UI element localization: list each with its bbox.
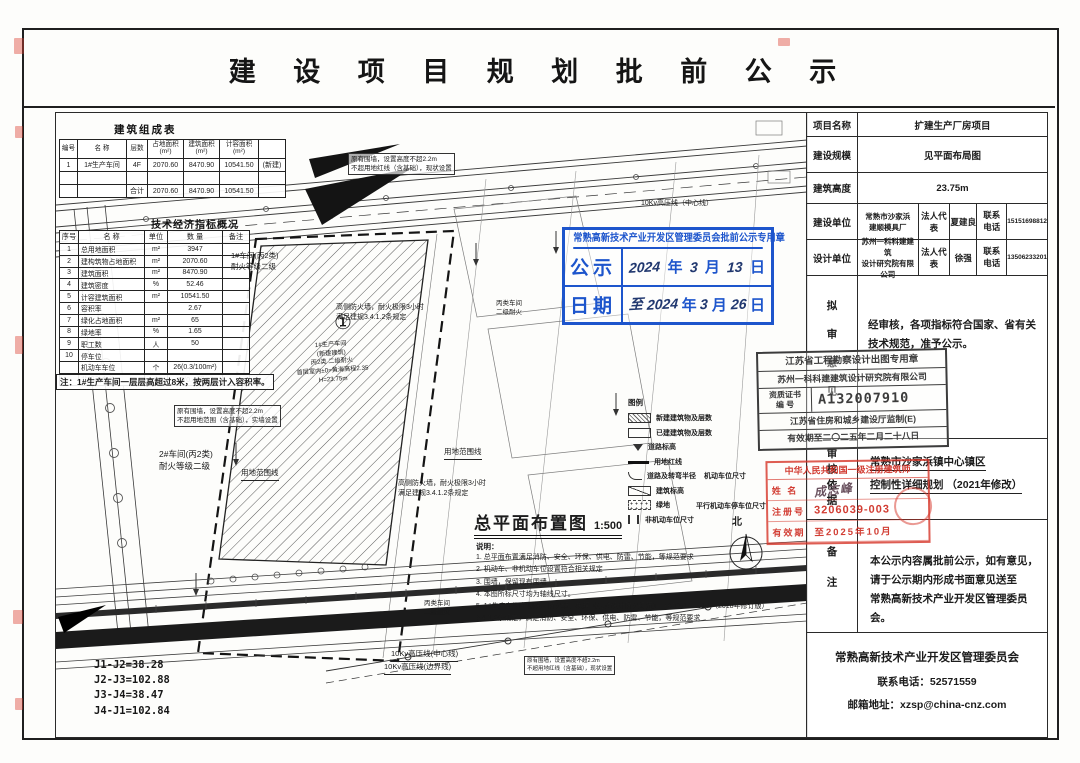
indicator-row: 5计容建筑面积 m²10541.50 bbox=[60, 291, 250, 303]
publicity-period-stamp: 常熟高新技术产业开发区管理委员会批前公示专用章 公示 日期 2024年 3月 1… bbox=[562, 227, 774, 325]
north-label: 北 bbox=[732, 513, 742, 528]
composition-header-cell bbox=[259, 140, 286, 159]
plan-title: 总平面布置图 bbox=[474, 514, 588, 533]
boundary-line-label-2: 用地范围线 bbox=[444, 447, 482, 460]
site-plan-drawing: 建筑组成表 编号名 称层数占地面积 (m²)建筑面积 (m²)计容面积 (m²)… bbox=[55, 112, 808, 738]
composition-row: 11#生产车间 4F2070.60 8470.9010541.50 (新建) bbox=[60, 159, 286, 172]
composition-table: 编号名 称层数占地面积 (m²)建筑面积 (m²)计容面积 (m²) 11#生产… bbox=[59, 139, 286, 198]
page-title: 建 设 项 目 规 划 批 前 公 示 bbox=[0, 50, 1080, 89]
composition-header-cell: 占地面积 (m²) bbox=[148, 140, 184, 159]
red-scan-mark bbox=[13, 610, 23, 624]
row-design-unit: 设计单位 苏州一科科建建筑 设计研究院有限公司 法人代表 徐强 联系电话 135… bbox=[807, 240, 1047, 276]
legend-existing-building-icon bbox=[628, 428, 651, 438]
plan-note-line: 4. 本图所标尺寸均为轴线尺寸。 bbox=[476, 589, 769, 601]
plan-note-line: 5. 1#生产车间东侧设置防火墙，按照《建筑设计防火规范》 GB50016-20… bbox=[476, 601, 769, 613]
publicity-stamp-labels: 公示 日期 bbox=[565, 249, 623, 322]
firewall-note-2: 高侧防火墙，耐火极限3小时 满足建规3.4.1.2条规定 bbox=[398, 479, 486, 499]
neighbor-label-2: 丙类车间 二级耐火 bbox=[424, 599, 450, 617]
row-build-scale: 建设规模 见平面布局图 bbox=[807, 137, 1047, 173]
plan-heading: 总平面布置图1:500 bbox=[474, 509, 622, 539]
plan-note-line: 1. 总平面布置满足消防、安全、环保、供电、防雷、节能，等规范要求 bbox=[476, 552, 769, 564]
row-construction-unit: 建设单位 常熟市沙家浜 建顺模具厂 法人代表 夏建良 联系电话 15151698… bbox=[807, 204, 1047, 240]
plan-notes: 说明： 1. 总平面布置满足消防、安全、环保、供电、防雷、节能，等规范要求2. … bbox=[476, 541, 769, 626]
composition-header-cell: 层数 bbox=[127, 140, 148, 159]
certificate-number-row: 资质证书编 号 A132007910 bbox=[759, 385, 946, 414]
red-scan-mark bbox=[778, 38, 790, 46]
bottom-road-arrow bbox=[58, 605, 106, 633]
architect-signature: 成志峰 bbox=[813, 478, 854, 500]
red-scan-mark bbox=[15, 126, 23, 138]
indicator-row: 2建构筑物占地面积 m²2070.60 bbox=[60, 255, 250, 267]
composition-header-cell: 编号 bbox=[60, 140, 78, 159]
row-project-name: 项目名称 扩建生产厂房项目 bbox=[807, 113, 1047, 137]
building-label: 1#生产车间 (新建建筑) 丙2类 二级耐火 首层室内±0=黄海高程2.35 H… bbox=[268, 337, 397, 389]
indicator-row: 3建筑面积 m²8470.90 bbox=[60, 267, 250, 279]
indicator-row: 4建筑密度 %52.46 bbox=[60, 279, 250, 291]
workshop2-label: 2#车间(丙2类) 耐火等级二级 bbox=[159, 449, 213, 473]
plan-scale: 1:500 bbox=[594, 520, 622, 532]
publicity-start-date: 2024年 3月 13日 bbox=[623, 249, 771, 287]
composition-row bbox=[60, 172, 286, 185]
registered-architect-stamp: 中华人民共和国一级注册建筑师 姓 名 成志峰 注册号 3206039-003 有… bbox=[765, 459, 930, 545]
indicator-row: 6容积率 2.67 bbox=[60, 302, 250, 314]
indicator-row: 1总用地面积 m²3947 bbox=[60, 244, 250, 256]
scanned-announcement-sheet: 建 设 项 目 规 划 批 前 公 示 bbox=[0, 0, 1080, 763]
boundary-length-item: J2-J3=102.88 bbox=[94, 673, 170, 688]
legend-redline-icon bbox=[628, 461, 649, 464]
indicator-table: 序号名 称单位数 量备注 1总用地面积 m²3947 2建构筑物占地面积 m²2… bbox=[59, 230, 250, 386]
road-arrow-2 bbox=[305, 168, 412, 225]
legend-new-building-icon bbox=[628, 413, 651, 423]
panel-footer: 常熟高新技术产业开发区管理委员会 联系电话：52571559 邮箱地址：xzsp… bbox=[807, 633, 1047, 737]
neighbor-label-1: 丙类车间 二级耐火 bbox=[496, 299, 522, 317]
publicity-end-date: 至 2024年 3月 26日 bbox=[623, 287, 771, 323]
design-institute-stamp: 江苏省工程勘察设计出图专用章 苏州一科科建建筑设计研究院有限公司 资质证书编 号… bbox=[756, 348, 949, 451]
plan-note-line: 3. 围墙，保留现有围墙 bbox=[476, 577, 769, 589]
legend-road-elevation-icon bbox=[633, 444, 643, 451]
wall-note-top: 原有围墙，设置高度不超2.2m 不超用地红线（含基础），现状设置 bbox=[348, 153, 455, 175]
composition-header-cell: 名 称 bbox=[78, 140, 127, 159]
contact-phone: 联系电话：52571559 bbox=[877, 674, 976, 689]
boundary-length-item: J4-J1=102.84 bbox=[94, 704, 170, 719]
indicator-row: 7绿化占地面积 m²65 bbox=[60, 314, 250, 326]
legend-building-elevation-icon bbox=[628, 486, 651, 496]
indicator-table-title: 技术经济指标概况 bbox=[151, 216, 239, 231]
indicator-note: 注：1#生产车间一层层高超过8米，按两层计入容积率。 bbox=[56, 374, 274, 390]
composition-header-cell: 计容面积 (m²) bbox=[220, 140, 259, 159]
red-scan-mark bbox=[14, 38, 24, 54]
red-scan-mark bbox=[15, 336, 23, 354]
indicator-row: 机动车车位 个26(0.3/100m²) bbox=[60, 361, 250, 373]
title-divider bbox=[24, 106, 1055, 108]
indicator-header-cell: 名 称 bbox=[79, 231, 145, 244]
boundary-line-label-1: 用地范围线 bbox=[241, 468, 279, 481]
row-building-height: 建筑高度 23.75m bbox=[807, 173, 1047, 204]
indicator-row: 10停车位 bbox=[60, 350, 250, 362]
certificate-number: A132007910 bbox=[812, 385, 946, 412]
composition-row: 合计2070.60 8470.9010541.50 bbox=[60, 185, 286, 198]
legend-turn-radius-icon bbox=[628, 472, 642, 480]
hv-center-label: 10Kv高压线(中心线) bbox=[391, 649, 458, 662]
plan-note-line: 3.4.1.2条规定，满足消防、安全、环保、供电、防雷、节能，等规范要求 bbox=[476, 613, 769, 625]
composition-header-cell: 建筑面积 (m²) bbox=[184, 140, 220, 159]
legend-title: 图例 bbox=[628, 397, 712, 408]
red-scan-mark bbox=[15, 698, 23, 710]
wall-note-bottom: 原有围墙，设置高度不超2.2m 不超用地红线（含基础），现状设置 bbox=[524, 656, 615, 675]
hv-edge-label: 10Kv高压线(边界线) bbox=[384, 662, 451, 675]
legend-car-dim-label: 机动车位尺寸 bbox=[704, 471, 746, 481]
legend-green-icon bbox=[628, 500, 651, 510]
new-building-footprint bbox=[219, 240, 428, 565]
plan-note-line: 2. 机动车、非机动车位设置符合相关规定 bbox=[476, 564, 769, 576]
boundary-length-item: J3-J4=38.47 bbox=[94, 688, 170, 703]
indicator-header-cell: 序号 bbox=[60, 231, 79, 244]
publicity-stamp-title: 常熟高新技术产业开发区管理委员会批前公示专用章 bbox=[573, 230, 763, 249]
indicator-header-cell: 备注 bbox=[223, 231, 250, 244]
plan-title-underline bbox=[474, 535, 622, 536]
plan-notes-title: 说明： bbox=[476, 541, 769, 552]
composition-table-title: 建筑组成表 bbox=[114, 122, 177, 137]
indicator-header-cell: 单位 bbox=[145, 231, 168, 244]
building-number-circle: ① bbox=[334, 309, 352, 337]
indicator-header-cell: 数 量 bbox=[168, 231, 223, 244]
boundary-length-list: J1-J2=38.28J2-J3=102.88J3-J4=38.47J4-J1=… bbox=[94, 658, 170, 719]
workshop1-label: 1#车间(丙2类) 耐火等级二级 bbox=[231, 251, 279, 272]
indicator-row: 8绿地率 %1.65 bbox=[60, 326, 250, 338]
legend-parallel-car-dim-label: 平行机动车停车位尺寸 bbox=[696, 501, 766, 511]
wall-note-left: 原有围墙，设置高度不超2.2m 不超用地范围（含基础），实墙设置 bbox=[174, 405, 281, 427]
hv-line-label-top: 10Kv高压线（中心线） bbox=[641, 199, 713, 209]
legend-bike-dim-icon bbox=[628, 515, 640, 524]
indicator-row: 9职工数 人50 bbox=[60, 338, 250, 350]
contact-mail: 邮箱地址：xzsp@china-cnz.com bbox=[847, 697, 1006, 712]
boundary-length-item: J1-J2=38.28 bbox=[94, 658, 170, 673]
managing-committee: 常熟高新技术产业开发区管理委员会 bbox=[835, 649, 1019, 665]
